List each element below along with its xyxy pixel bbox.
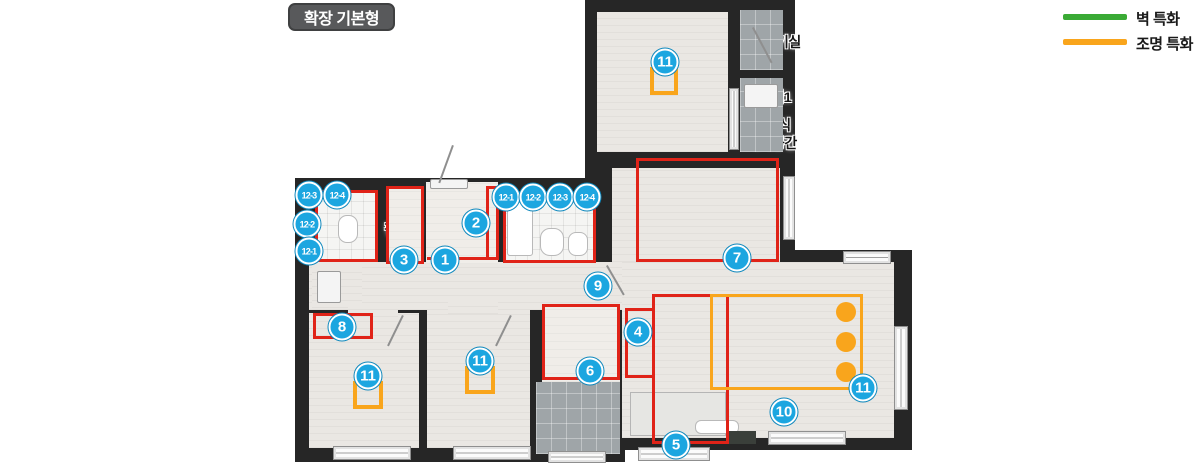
floor-outdoor-unit: [740, 10, 783, 70]
marker-12-2-bath1: 12-2: [294, 211, 321, 238]
light-dot-2: [836, 332, 856, 352]
marker-12-1-bath2: 12-1: [493, 184, 520, 211]
front-door: [430, 179, 468, 189]
marker-10: 10: [771, 399, 798, 426]
marker-11-bedroom1: 11: [652, 49, 679, 76]
marker-12-3-bath1: 12-3: [296, 182, 323, 209]
light-dot-1: [836, 302, 856, 322]
marker-12-2-bath2: 12-2: [520, 184, 547, 211]
marker-5: 5: [663, 432, 690, 459]
marker-11-living: 11: [850, 375, 877, 402]
marker-6: 6: [577, 358, 604, 385]
marker-11-bedroom3: 11: [467, 348, 494, 375]
marker-8: 8: [329, 314, 356, 341]
tv-console: [728, 431, 756, 444]
window-living-top: [843, 251, 891, 264]
marker-12-3-bath2: 12-3: [547, 184, 574, 211]
evacuation-hatch: [744, 84, 778, 108]
door-opening-bedroom3: [448, 300, 498, 314]
legend-wall-line: [1063, 14, 1127, 20]
red-zone-dress-alpha: [636, 158, 779, 262]
plan-title: 확장 기본형: [288, 3, 395, 31]
floor-balcony2: [536, 382, 620, 454]
window-balcony1: [729, 88, 739, 150]
marker-1: 1: [432, 247, 459, 274]
legend-light-label: 조명 특화: [1136, 33, 1193, 54]
floorplan-canvas: 확장 기본형 벽 특화 조명 특화: [0, 0, 1200, 467]
window-balcony2: [548, 451, 606, 463]
marker-12-4-bath1: 12-4: [324, 182, 351, 209]
legend-wall-label: 벽 특화: [1136, 8, 1180, 29]
marker-4: 4: [625, 319, 652, 346]
marker-12-1-bath1: 12-1: [296, 238, 323, 265]
marker-2: 2: [463, 210, 490, 237]
marker-3: 3: [391, 247, 418, 274]
marker-11-bedroom2: 11: [355, 363, 382, 390]
window-bedroom3: [453, 446, 531, 460]
washer-unit: [317, 271, 341, 303]
marker-9: 9: [585, 273, 612, 300]
legend-light-line: [1063, 39, 1127, 45]
window-alpharoom: [783, 176, 795, 240]
marker-12-4-bath2: 12-4: [574, 184, 601, 211]
window-bedroom2: [333, 446, 411, 460]
window-living-bottom: [768, 431, 846, 445]
window-living-right: [894, 326, 908, 410]
marker-7: 7: [724, 245, 751, 272]
